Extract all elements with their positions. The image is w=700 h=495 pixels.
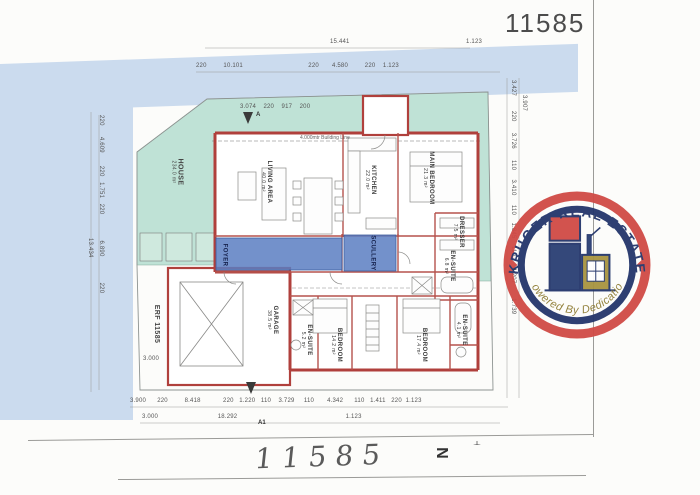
dim-top-right: 1.123	[466, 39, 482, 45]
dim-garage-width: 3.000	[143, 356, 159, 362]
room-label-bedroom-right: BEDROOM17.4 m²	[415, 328, 427, 362]
house-area-label: HOUSE234.0 m²	[170, 159, 183, 186]
dim-left-col: 220 4.609 220 1.751 220 6.890 220	[98, 115, 104, 293]
dim-right-top: 3.907	[521, 95, 527, 111]
room-label-foyer: FOYER	[221, 244, 228, 267]
building-line-note: 4.000mtr Building Line	[300, 135, 350, 141]
kruger-real-estate-stamp: KRUGER REAL ESTATE Powered By Dedication	[502, 190, 652, 340]
section-a-label: A	[256, 112, 260, 118]
handwritten-doc-number: 11585	[253, 438, 390, 476]
erf-label: ERF 11585	[152, 305, 160, 344]
dim-left-overall: 13.434	[87, 238, 93, 258]
scan-underline-bottom	[118, 475, 586, 480]
room-label-kitchen: KITCHEN22.0 m²	[364, 165, 376, 194]
north-compass-icon	[459, 441, 495, 445]
scanned-floorplan-page: { "page": { "doc_number_top": "11585", "…	[0, 0, 700, 495]
room-label-main-bedroom: MAIN BEDROOM21.3 m²	[422, 151, 434, 204]
room-label-ensuite-right: EN-SUITE4.1 m²	[455, 314, 467, 345]
dim-bottom-row1: 3.900 220 8.418 220 1.220 110 3.729 110 …	[130, 398, 422, 404]
room-label-scullery: SCULLERY	[369, 235, 376, 270]
dim-top-row2: 220 10.101 220 4.580 220 1.123	[196, 63, 399, 69]
room-label-living: LIVING AREA40.0 m²	[260, 161, 272, 204]
dim-top-overall: 15.441	[330, 39, 350, 45]
yard-paving	[140, 233, 218, 261]
room-label-ensuite-main: EN-SUITE6.8 m²	[443, 250, 455, 281]
room-label-bedroom-left: BEDROOM14.2 m²	[330, 328, 342, 362]
section-a1-label: A1	[258, 420, 266, 426]
portico	[363, 96, 408, 135]
stamp-house-graphic	[545, 216, 616, 290]
room-label-dresser: DRESSER7.5 m²	[452, 216, 464, 248]
north-label: N	[435, 447, 453, 459]
room-label-garage: GARAGE38.5 m²	[266, 306, 278, 335]
foyer-corridor-highlight	[216, 238, 342, 270]
dim-upper-inner: 3.074 220 917 200	[240, 104, 310, 110]
room-label-ensuite-left: EN-SUITE5.2 m²	[300, 324, 312, 355]
dim-bottom-row2: 3.000 18.292 1.123	[142, 414, 362, 420]
